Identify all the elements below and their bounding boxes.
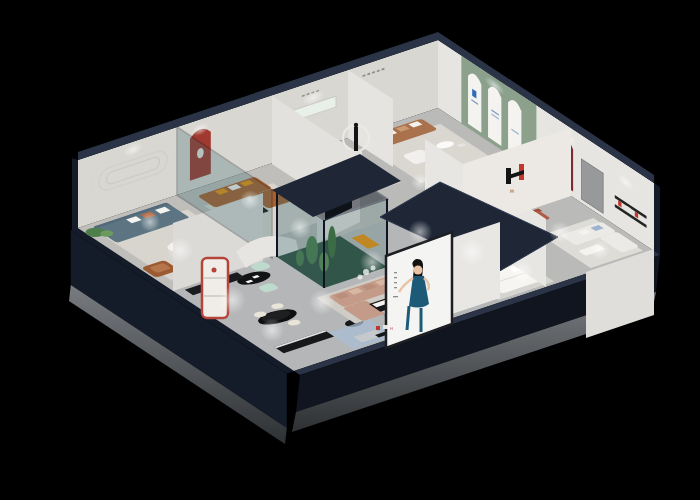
model-face: [414, 266, 423, 275]
figure: [354, 127, 358, 151]
west-edge-strip: [72, 158, 78, 234]
figure-head: [354, 123, 358, 127]
showroom-render: H: [0, 0, 700, 500]
white-facade-panel: [452, 222, 500, 314]
shelf-brand-text: H: [390, 326, 393, 331]
logo-dash: [383, 325, 388, 329]
logo-dot: [376, 326, 380, 330]
isometric-cutaway: H: [0, 0, 700, 500]
brand-mark-text: H: [510, 188, 514, 194]
shelf-decor: [212, 268, 217, 273]
east-outer-edge: [654, 183, 660, 258]
